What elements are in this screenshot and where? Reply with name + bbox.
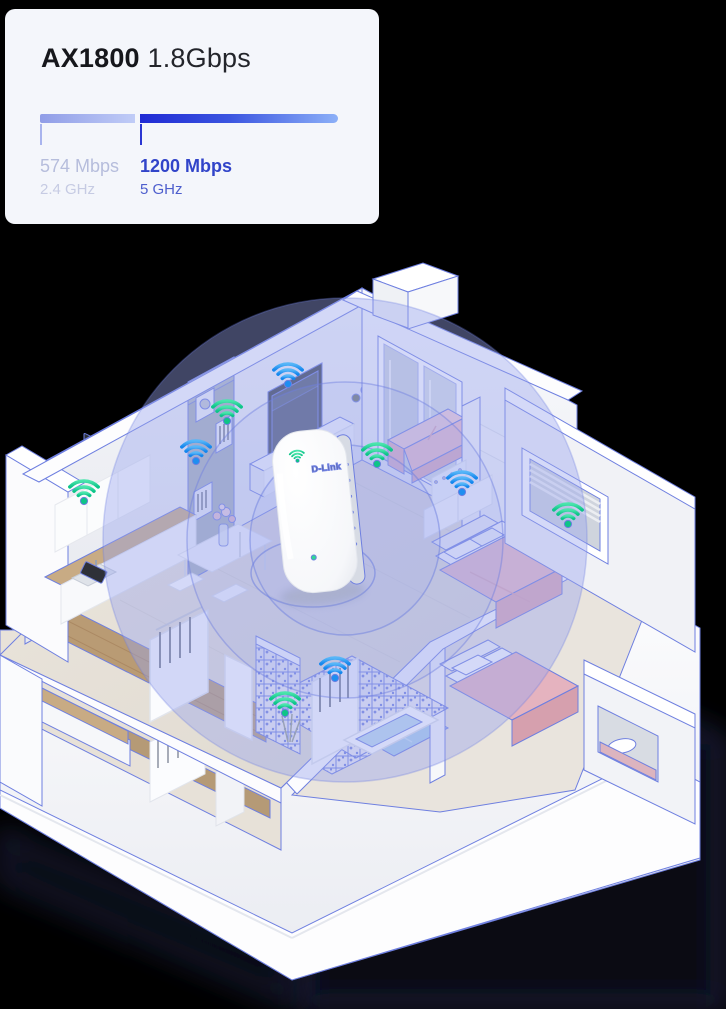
tick-2g [40, 124, 42, 145]
band-label-2g: 2.4 GHz [40, 181, 119, 198]
band-info-5g: 1200 Mbps 5 GHz [140, 156, 232, 198]
total-speed: 1.8Gbps [147, 43, 250, 73]
tick-5g [140, 124, 142, 145]
led-indicator [311, 555, 316, 560]
band-speed-2g: 574 Mbps [40, 156, 119, 177]
band-label-5g: 5 GHz [140, 181, 232, 198]
band-info-2g: 574 Mbps 2.4 GHz [40, 156, 119, 198]
lower-endcap-wall [0, 655, 42, 806]
bar-row [40, 114, 340, 123]
model-name: AX1800 [41, 43, 140, 73]
spec-card: AX1800 1.8Gbps 574 Mbps 2.4 GHz 1200 Mbp… [5, 9, 379, 224]
card-title: AX1800 1.8Gbps [41, 43, 251, 74]
page-background: D-Link AX1800 1.8Gbps 574 Mbps 2.4 GHz 1… [0, 0, 726, 1009]
band-bar: 574 Mbps 2.4 GHz 1200 Mbps 5 GHz [40, 114, 340, 214]
band-segment-2g [40, 114, 135, 123]
band-speed-5g: 1200 Mbps [140, 156, 232, 177]
band-segment-5g [140, 114, 338, 123]
